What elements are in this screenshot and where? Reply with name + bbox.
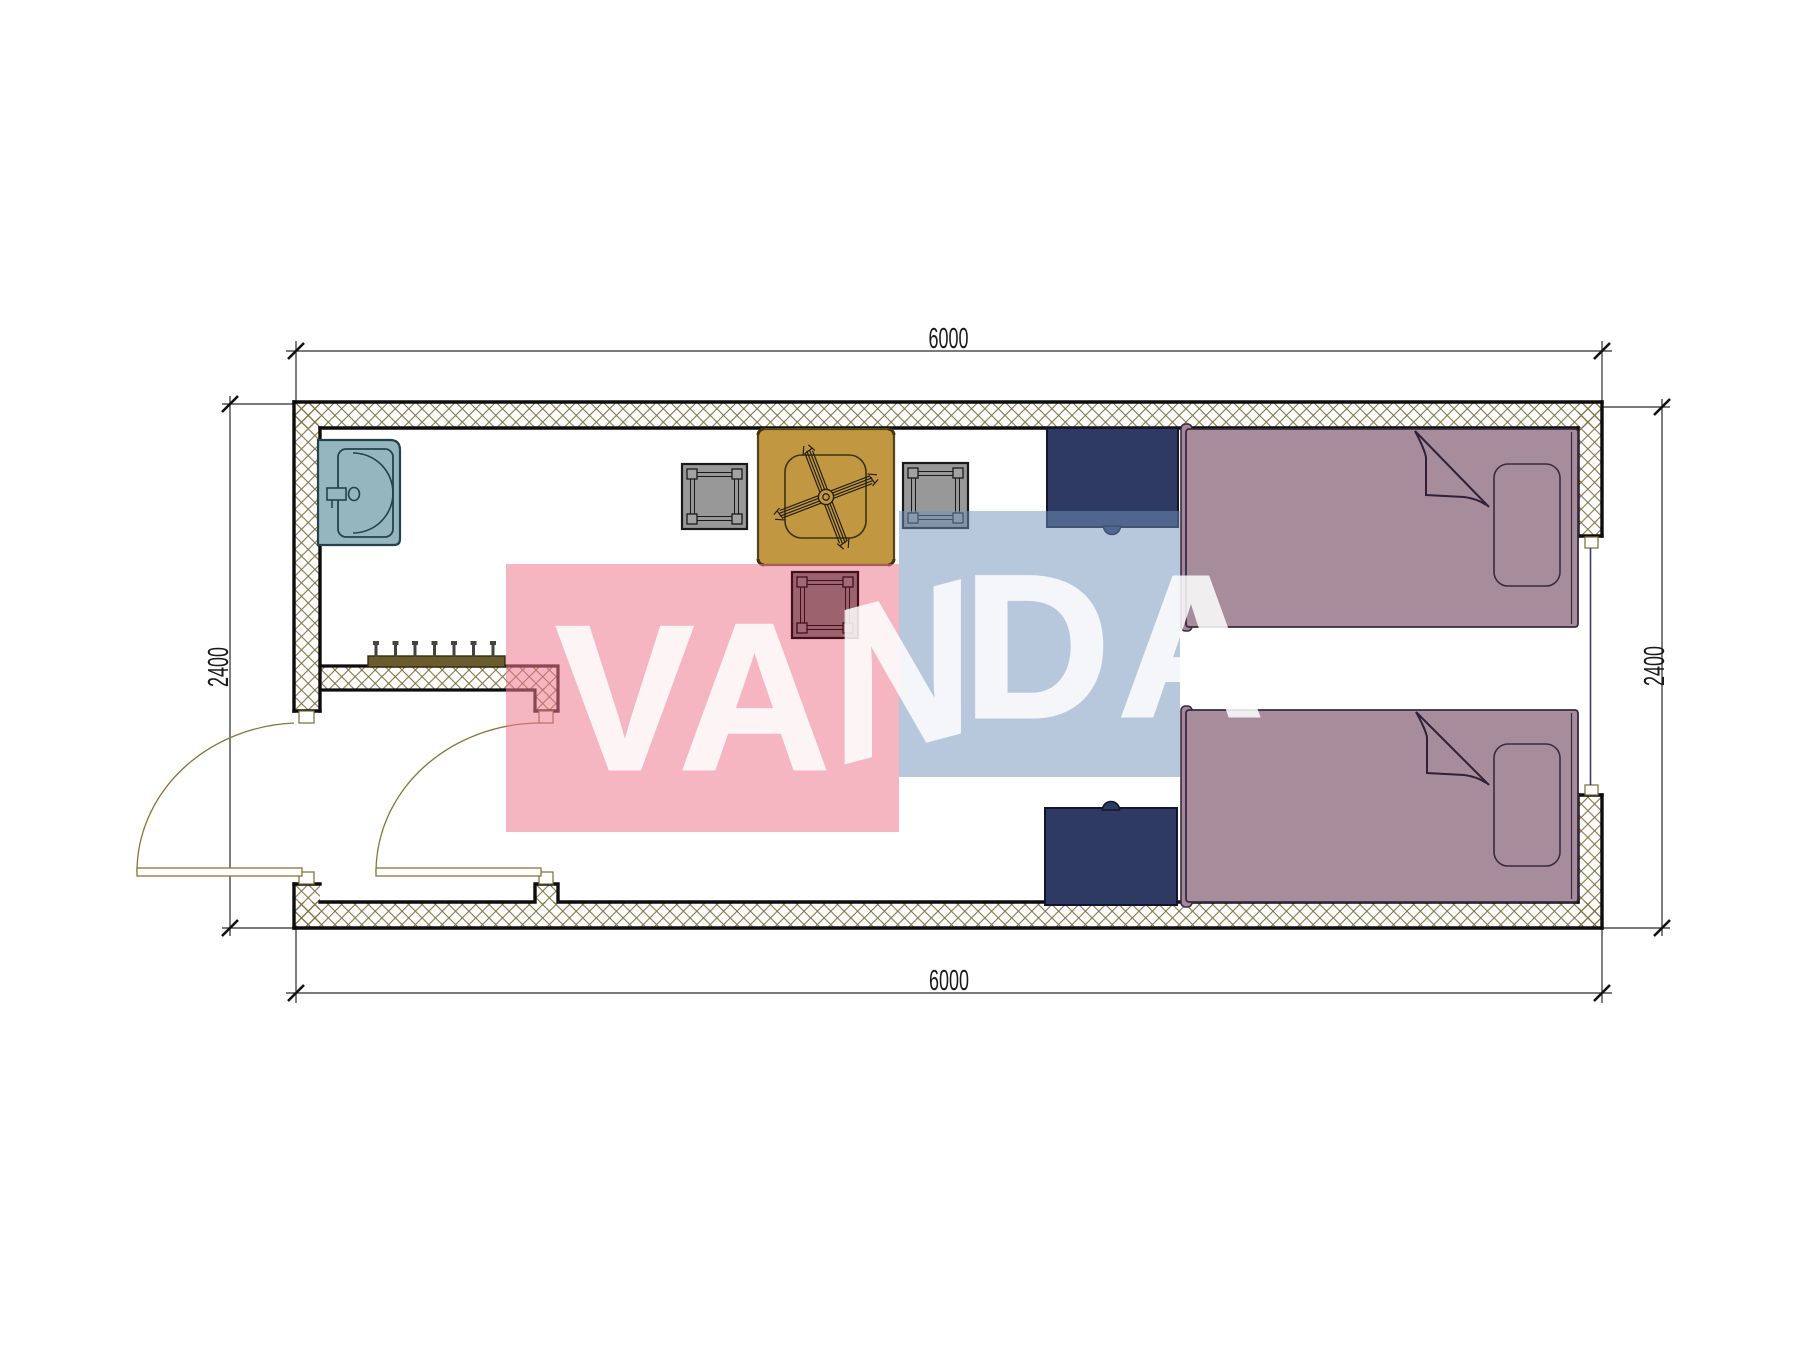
svg-text:6000: 6000 xyxy=(929,323,969,355)
svg-text:A: A xyxy=(1118,533,1264,759)
svg-text:D: D xyxy=(963,533,1110,761)
svg-text:A: A xyxy=(679,581,830,814)
svg-text:N: N xyxy=(833,530,973,813)
svg-text:V: V xyxy=(556,583,693,813)
svg-text:2400: 2400 xyxy=(1639,646,1671,686)
svg-text:2400: 2400 xyxy=(203,647,235,687)
svg-text:6000: 6000 xyxy=(929,965,969,997)
